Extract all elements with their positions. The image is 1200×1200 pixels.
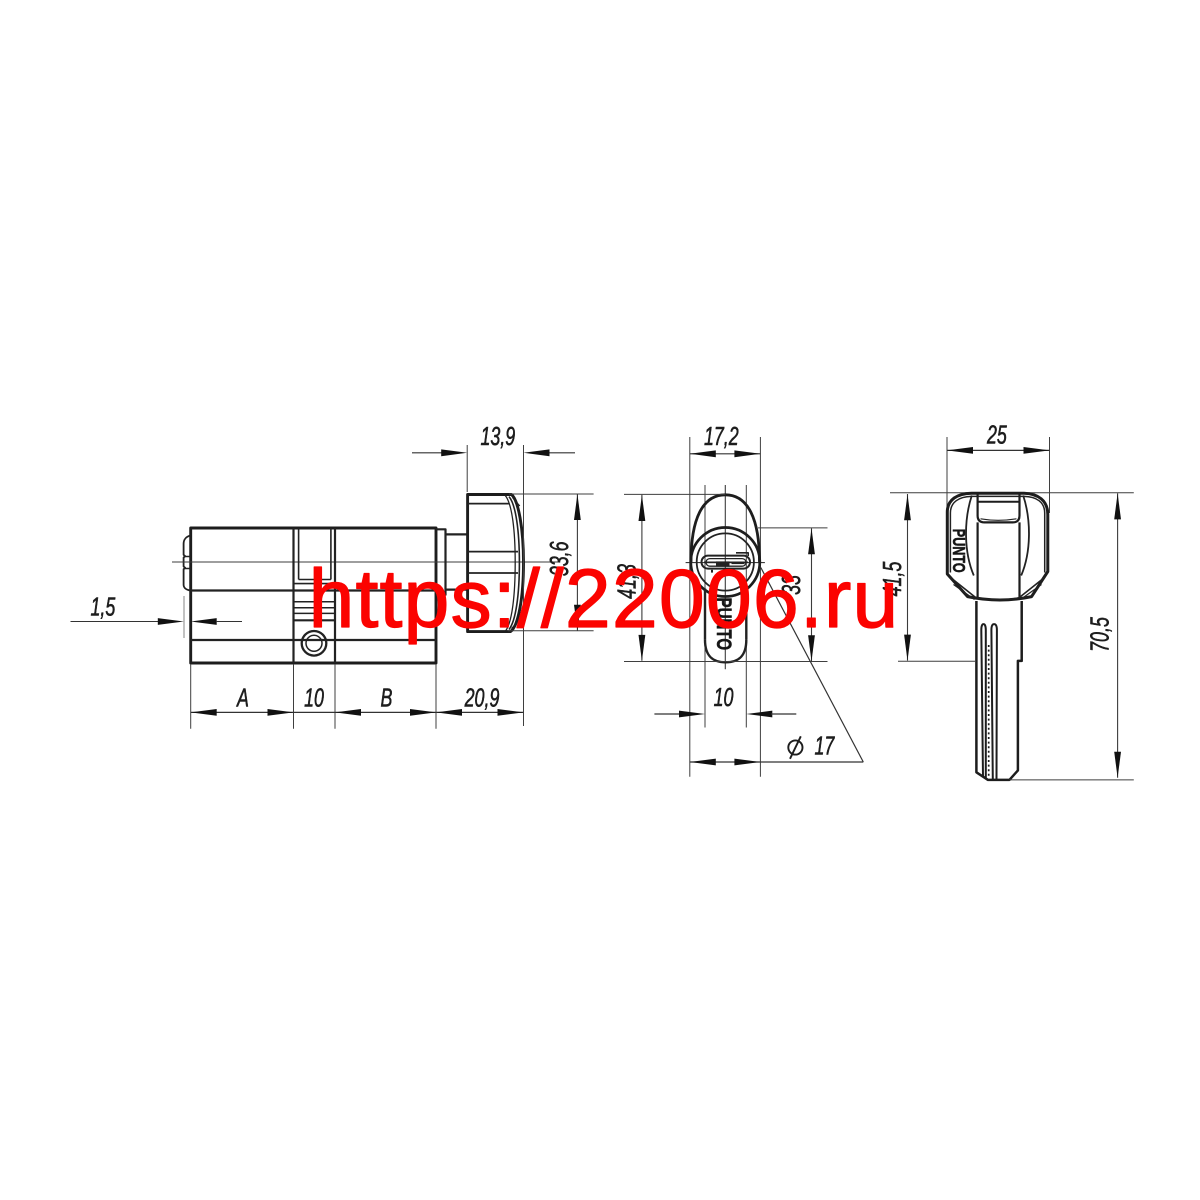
svg-text:70,5: 70,5 (1085, 617, 1114, 652)
svg-text:PUNTO: PUNTO (949, 529, 969, 573)
svg-text:https://22006.ru: https://22006.ru (309, 553, 900, 645)
svg-text:17,2: 17,2 (704, 422, 739, 451)
svg-text:20,9: 20,9 (464, 683, 500, 712)
svg-text:10: 10 (714, 683, 734, 712)
svg-text:25: 25 (986, 420, 1007, 449)
svg-text:17: 17 (814, 731, 834, 760)
svg-text:1,5: 1,5 (90, 592, 115, 621)
svg-text:10: 10 (304, 683, 324, 712)
svg-text:B: B (381, 683, 393, 712)
svg-text:A: A (235, 683, 249, 712)
svg-text:13,9: 13,9 (480, 422, 515, 451)
